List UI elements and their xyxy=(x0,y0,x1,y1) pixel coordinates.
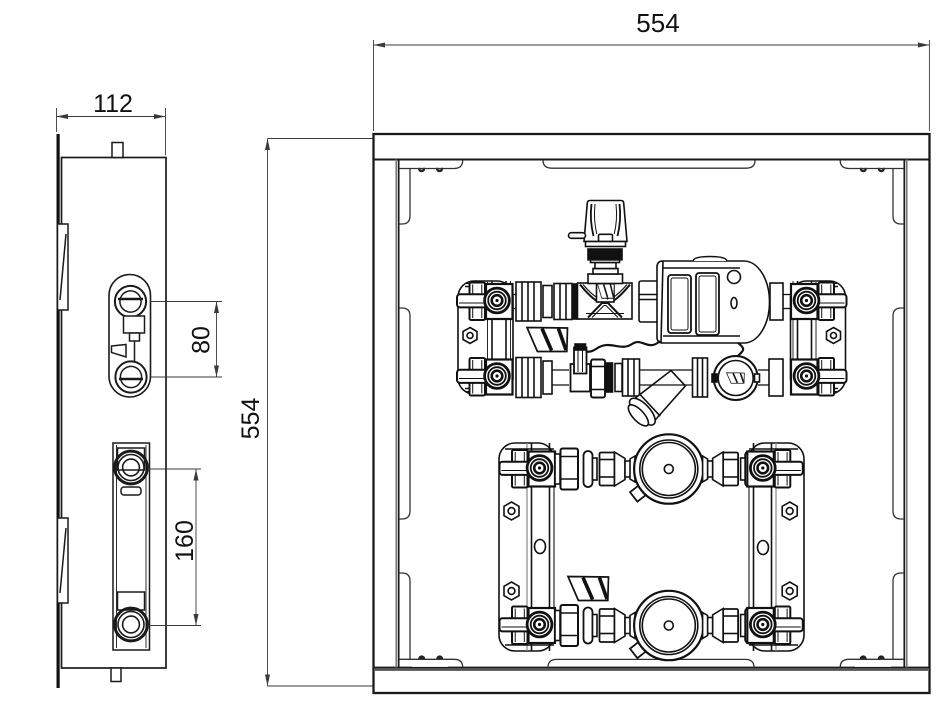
svg-text:554: 554 xyxy=(636,8,679,38)
svg-text:160: 160 xyxy=(171,520,199,562)
svg-text:112: 112 xyxy=(93,90,133,118)
svg-text:80: 80 xyxy=(188,326,216,354)
svg-text:554: 554 xyxy=(237,398,265,440)
